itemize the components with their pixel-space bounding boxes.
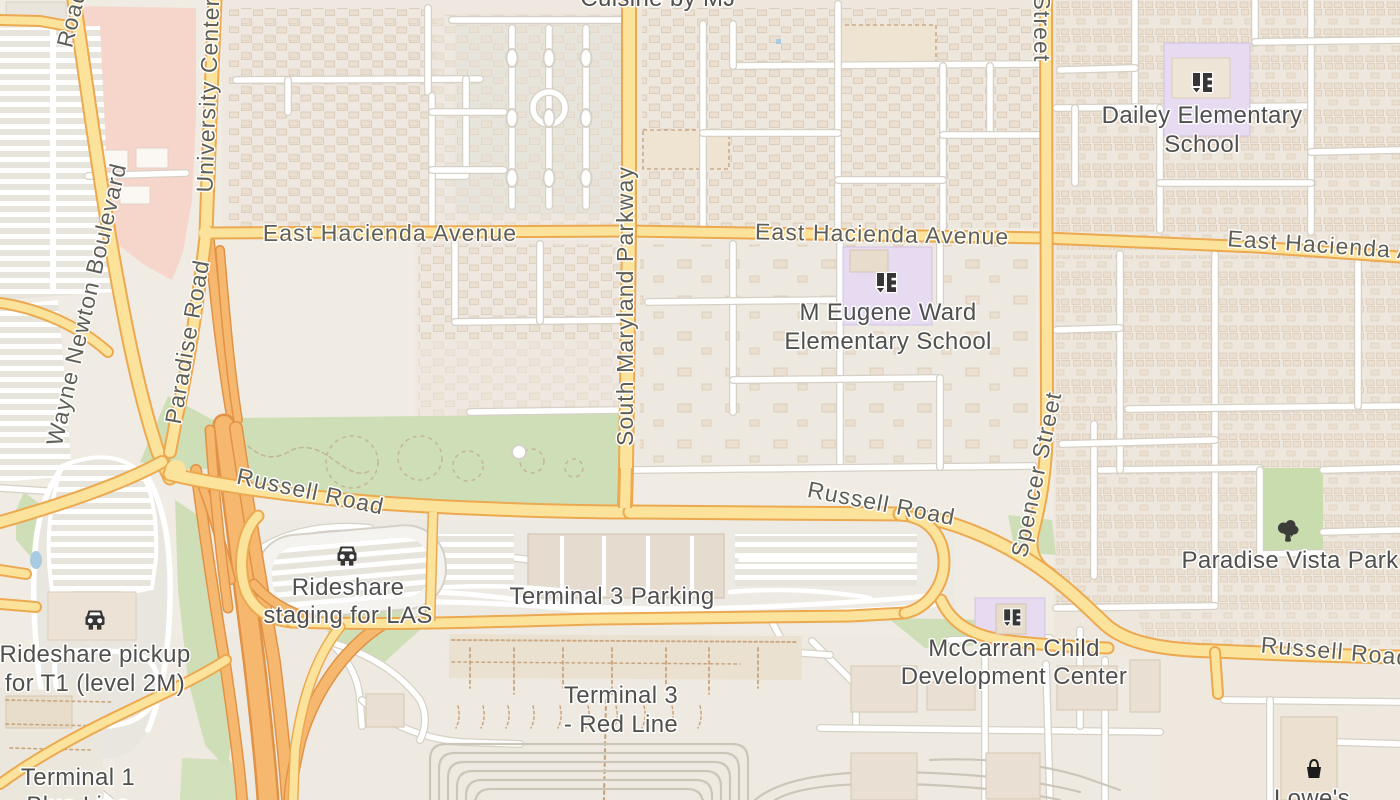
svg-text:Terminal 3 Parking: Terminal 3 Parking <box>509 583 714 610</box>
svg-text:Paradise Vista Park: Paradise Vista Park <box>1182 547 1400 574</box>
svg-text:McCarran Child: McCarran Child <box>928 635 1100 662</box>
svg-text:for T1 (level 2M): for T1 (level 2M) <box>5 670 185 697</box>
svg-text:Cuisine by MJ: Cuisine by MJ <box>580 0 735 12</box>
svg-text:staging for LAS: staging for LAS <box>263 602 432 629</box>
svg-text:Dailey Elementary: Dailey Elementary <box>1102 102 1303 129</box>
svg-text:Blue Line: Blue Line <box>26 792 129 800</box>
svg-text:M Eugene Ward: M Eugene Ward <box>799 299 976 326</box>
svg-text:Terminal 1: Terminal 1 <box>21 764 135 791</box>
svg-text:Rideshare: Rideshare <box>292 574 405 601</box>
svg-text:East Hacienda Avenue: East Hacienda Avenue <box>263 220 517 246</box>
svg-text:School: School <box>1164 131 1239 158</box>
svg-text:Lowe's: Lowe's <box>1274 785 1350 800</box>
svg-text:Rideshare pickup: Rideshare pickup <box>0 641 191 668</box>
svg-text:Spencer Street: Spencer Street <box>1029 0 1055 62</box>
svg-text:- Red Line: - Red Line <box>564 711 678 738</box>
svg-text:Development Center: Development Center <box>901 663 1127 690</box>
svg-text:South Maryland Parkway: South Maryland Parkway <box>612 166 638 446</box>
svg-text:Elementary School: Elementary School <box>784 328 991 355</box>
svg-text:Terminal 3: Terminal 3 <box>564 682 678 709</box>
svg-text:East Hacienda Avenue: East Hacienda Avenue <box>755 218 1010 249</box>
